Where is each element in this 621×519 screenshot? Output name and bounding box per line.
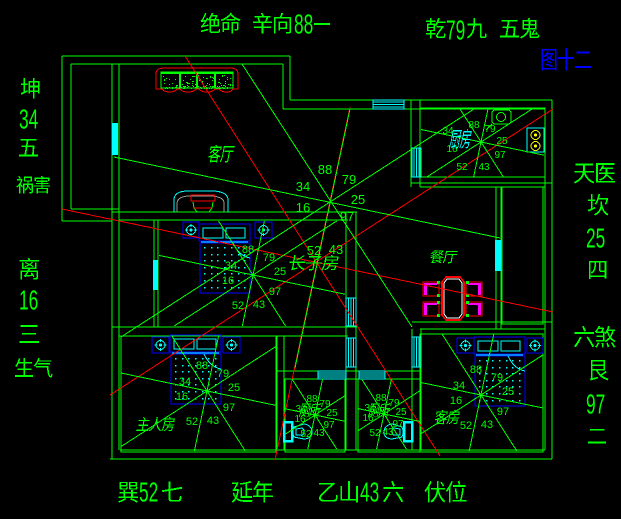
svg-text:97: 97 <box>269 286 281 298</box>
svg-text:88: 88 <box>470 364 482 376</box>
svg-text:43: 43 <box>329 242 343 257</box>
svg-text:79: 79 <box>217 368 229 380</box>
svg-text:79: 79 <box>491 372 503 384</box>
svg-text:16: 16 <box>222 275 234 287</box>
svg-text:16: 16 <box>446 144 458 155</box>
svg-text:88: 88 <box>375 393 387 404</box>
svg-text:25: 25 <box>586 222 605 253</box>
svg-text:52: 52 <box>460 420 472 432</box>
svg-text:88: 88 <box>306 394 318 405</box>
svg-text:25: 25 <box>326 408 338 419</box>
svg-text:43: 43 <box>207 415 219 427</box>
svg-text:97: 97 <box>392 419 404 430</box>
svg-text:43: 43 <box>382 427 394 438</box>
svg-text:43: 43 <box>313 428 325 439</box>
svg-text:52: 52 <box>139 476 158 507</box>
svg-text:79: 79 <box>446 14 465 45</box>
svg-text:88: 88 <box>294 8 313 39</box>
svg-text:97: 97 <box>340 209 354 224</box>
svg-text:34: 34 <box>225 260 237 272</box>
svg-text:25: 25 <box>496 136 508 147</box>
svg-text:25: 25 <box>395 407 407 418</box>
svg-text:25: 25 <box>274 266 286 278</box>
svg-text:16: 16 <box>296 200 310 215</box>
svg-text:88: 88 <box>242 244 254 256</box>
svg-text:43: 43 <box>481 419 493 431</box>
svg-text:52: 52 <box>456 162 468 173</box>
svg-text:97: 97 <box>494 150 506 161</box>
svg-text:16: 16 <box>450 395 462 407</box>
svg-text:34: 34 <box>19 103 38 134</box>
svg-text:88: 88 <box>318 162 332 177</box>
svg-text:34: 34 <box>453 380 465 392</box>
svg-text:52: 52 <box>232 300 244 312</box>
svg-text:16: 16 <box>19 284 38 315</box>
svg-text:43: 43 <box>478 162 490 173</box>
svg-text:43: 43 <box>253 299 265 311</box>
svg-text:79: 79 <box>342 172 356 187</box>
svg-text:79: 79 <box>263 252 275 264</box>
svg-text:97: 97 <box>223 402 235 414</box>
svg-text:88: 88 <box>196 360 208 372</box>
svg-text:52: 52 <box>307 243 321 258</box>
svg-text:52: 52 <box>369 428 381 439</box>
svg-text:34: 34 <box>179 376 191 388</box>
svg-text:43: 43 <box>360 476 379 507</box>
svg-text:79: 79 <box>484 124 496 135</box>
svg-text:34: 34 <box>296 179 310 194</box>
svg-text:52: 52 <box>300 429 312 440</box>
svg-text:97: 97 <box>497 406 509 418</box>
svg-text:25: 25 <box>502 386 514 398</box>
svg-text:52: 52 <box>186 416 198 428</box>
svg-text:88: 88 <box>468 120 480 131</box>
svg-text:16: 16 <box>176 391 188 403</box>
svg-text:97: 97 <box>323 420 335 431</box>
svg-text:25: 25 <box>228 382 240 394</box>
svg-text:25: 25 <box>351 192 365 207</box>
svg-text:97: 97 <box>586 388 605 419</box>
